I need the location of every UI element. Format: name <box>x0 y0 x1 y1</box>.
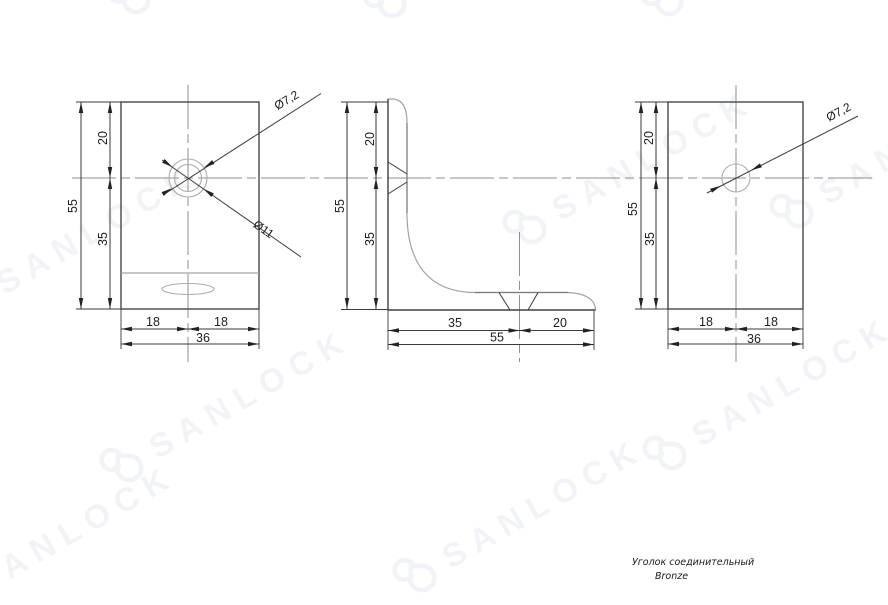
profile-inner-edges <box>407 123 568 293</box>
arrowhead-icon <box>108 178 112 189</box>
arrowhead-icon <box>668 342 679 346</box>
arrowhead-icon <box>248 327 259 331</box>
front-dim-bottom: 35 <box>96 232 110 246</box>
side-dim-bottom: 35 <box>363 232 377 246</box>
side-dim-leg: 35 <box>448 316 462 330</box>
arrowhead-icon <box>583 342 594 346</box>
arrowhead-icon <box>108 102 112 113</box>
arrowhead-icon <box>654 178 658 189</box>
arrowhead-icon <box>374 102 378 113</box>
arrowhead-icon <box>79 102 83 113</box>
front-dim-left: 18 <box>146 315 160 329</box>
back-dim-top: 20 <box>642 131 656 145</box>
arrowhead-icon <box>121 342 132 346</box>
engineering-drawing: 55 20 35 18 18 36 Ø7,2 Ø11 <box>0 0 888 605</box>
arrowhead-icon <box>177 327 188 331</box>
angle-profile-outline <box>388 99 596 310</box>
arrowhead-icon <box>654 298 658 309</box>
arrowhead-icon <box>736 327 747 331</box>
arrowhead-icon <box>792 327 803 331</box>
front-dim-width: 36 <box>196 331 210 345</box>
arrowhead-icon <box>388 342 399 346</box>
arrowhead-icon <box>121 327 132 331</box>
side-view: 55 20 35 35 20 55 <box>333 99 596 362</box>
front-dim-top: 20 <box>96 131 110 145</box>
arrowhead-icon <box>725 327 736 331</box>
part-title: Уголок соединительный <box>632 557 754 568</box>
arrowhead-icon <box>374 178 378 189</box>
part-finish: Bronze <box>655 571 688 582</box>
drawing-sheet: SANLOCK SANLOCK SANLOCK SANLOCK SANLOCK … <box>0 0 888 605</box>
arrowhead-icon <box>710 184 722 193</box>
profile-outer-edges <box>388 99 596 310</box>
back-dim-left: 18 <box>699 315 713 329</box>
arrowhead-icon <box>750 163 762 172</box>
side-dim-width: 55 <box>490 331 504 345</box>
side-dim-end: 20 <box>553 316 567 330</box>
front-dim-height: 55 <box>66 199 80 213</box>
arrowhead-icon <box>388 328 399 332</box>
arrowhead-icon <box>639 102 643 113</box>
back-dim-right: 18 <box>764 315 778 329</box>
countersink-section-horizontal-leg <box>499 293 538 311</box>
hole-leader-line <box>163 94 321 196</box>
arrowhead-icon <box>792 342 803 346</box>
back-dim-width: 36 <box>747 332 761 346</box>
arrowhead-icon <box>345 102 349 113</box>
arrowhead-icon <box>374 298 378 309</box>
hole-leader-line <box>707 116 858 193</box>
side-dim-top: 20 <box>363 132 377 146</box>
front-dim-right: 18 <box>214 315 228 329</box>
arrowhead-icon <box>509 328 520 332</box>
arrowhead-icon <box>668 327 679 331</box>
front-view: 55 20 35 18 18 36 Ø7,2 Ø11 <box>66 85 321 362</box>
arrowhead-icon <box>248 342 259 346</box>
arrowhead-icon <box>108 167 112 178</box>
arrowhead-icon <box>345 298 349 309</box>
arrowhead-icon <box>79 298 83 309</box>
arrowhead-icon <box>654 167 658 178</box>
back-view: 55 20 35 18 18 36 Ø7,2 <box>626 85 858 362</box>
plate-outline <box>121 102 259 309</box>
arrowhead-icon <box>374 167 378 178</box>
back-dim-height: 55 <box>626 202 640 216</box>
counterbore-leader-line <box>162 160 301 257</box>
side-dim-height: 55 <box>333 199 347 213</box>
back-dim-bottom: 35 <box>643 232 657 246</box>
arrowhead-icon <box>520 328 531 332</box>
arrowhead-icon <box>639 298 643 309</box>
arrowhead-icon <box>108 298 112 309</box>
arrowhead-icon <box>583 328 594 332</box>
arrowhead-icon <box>654 102 658 113</box>
